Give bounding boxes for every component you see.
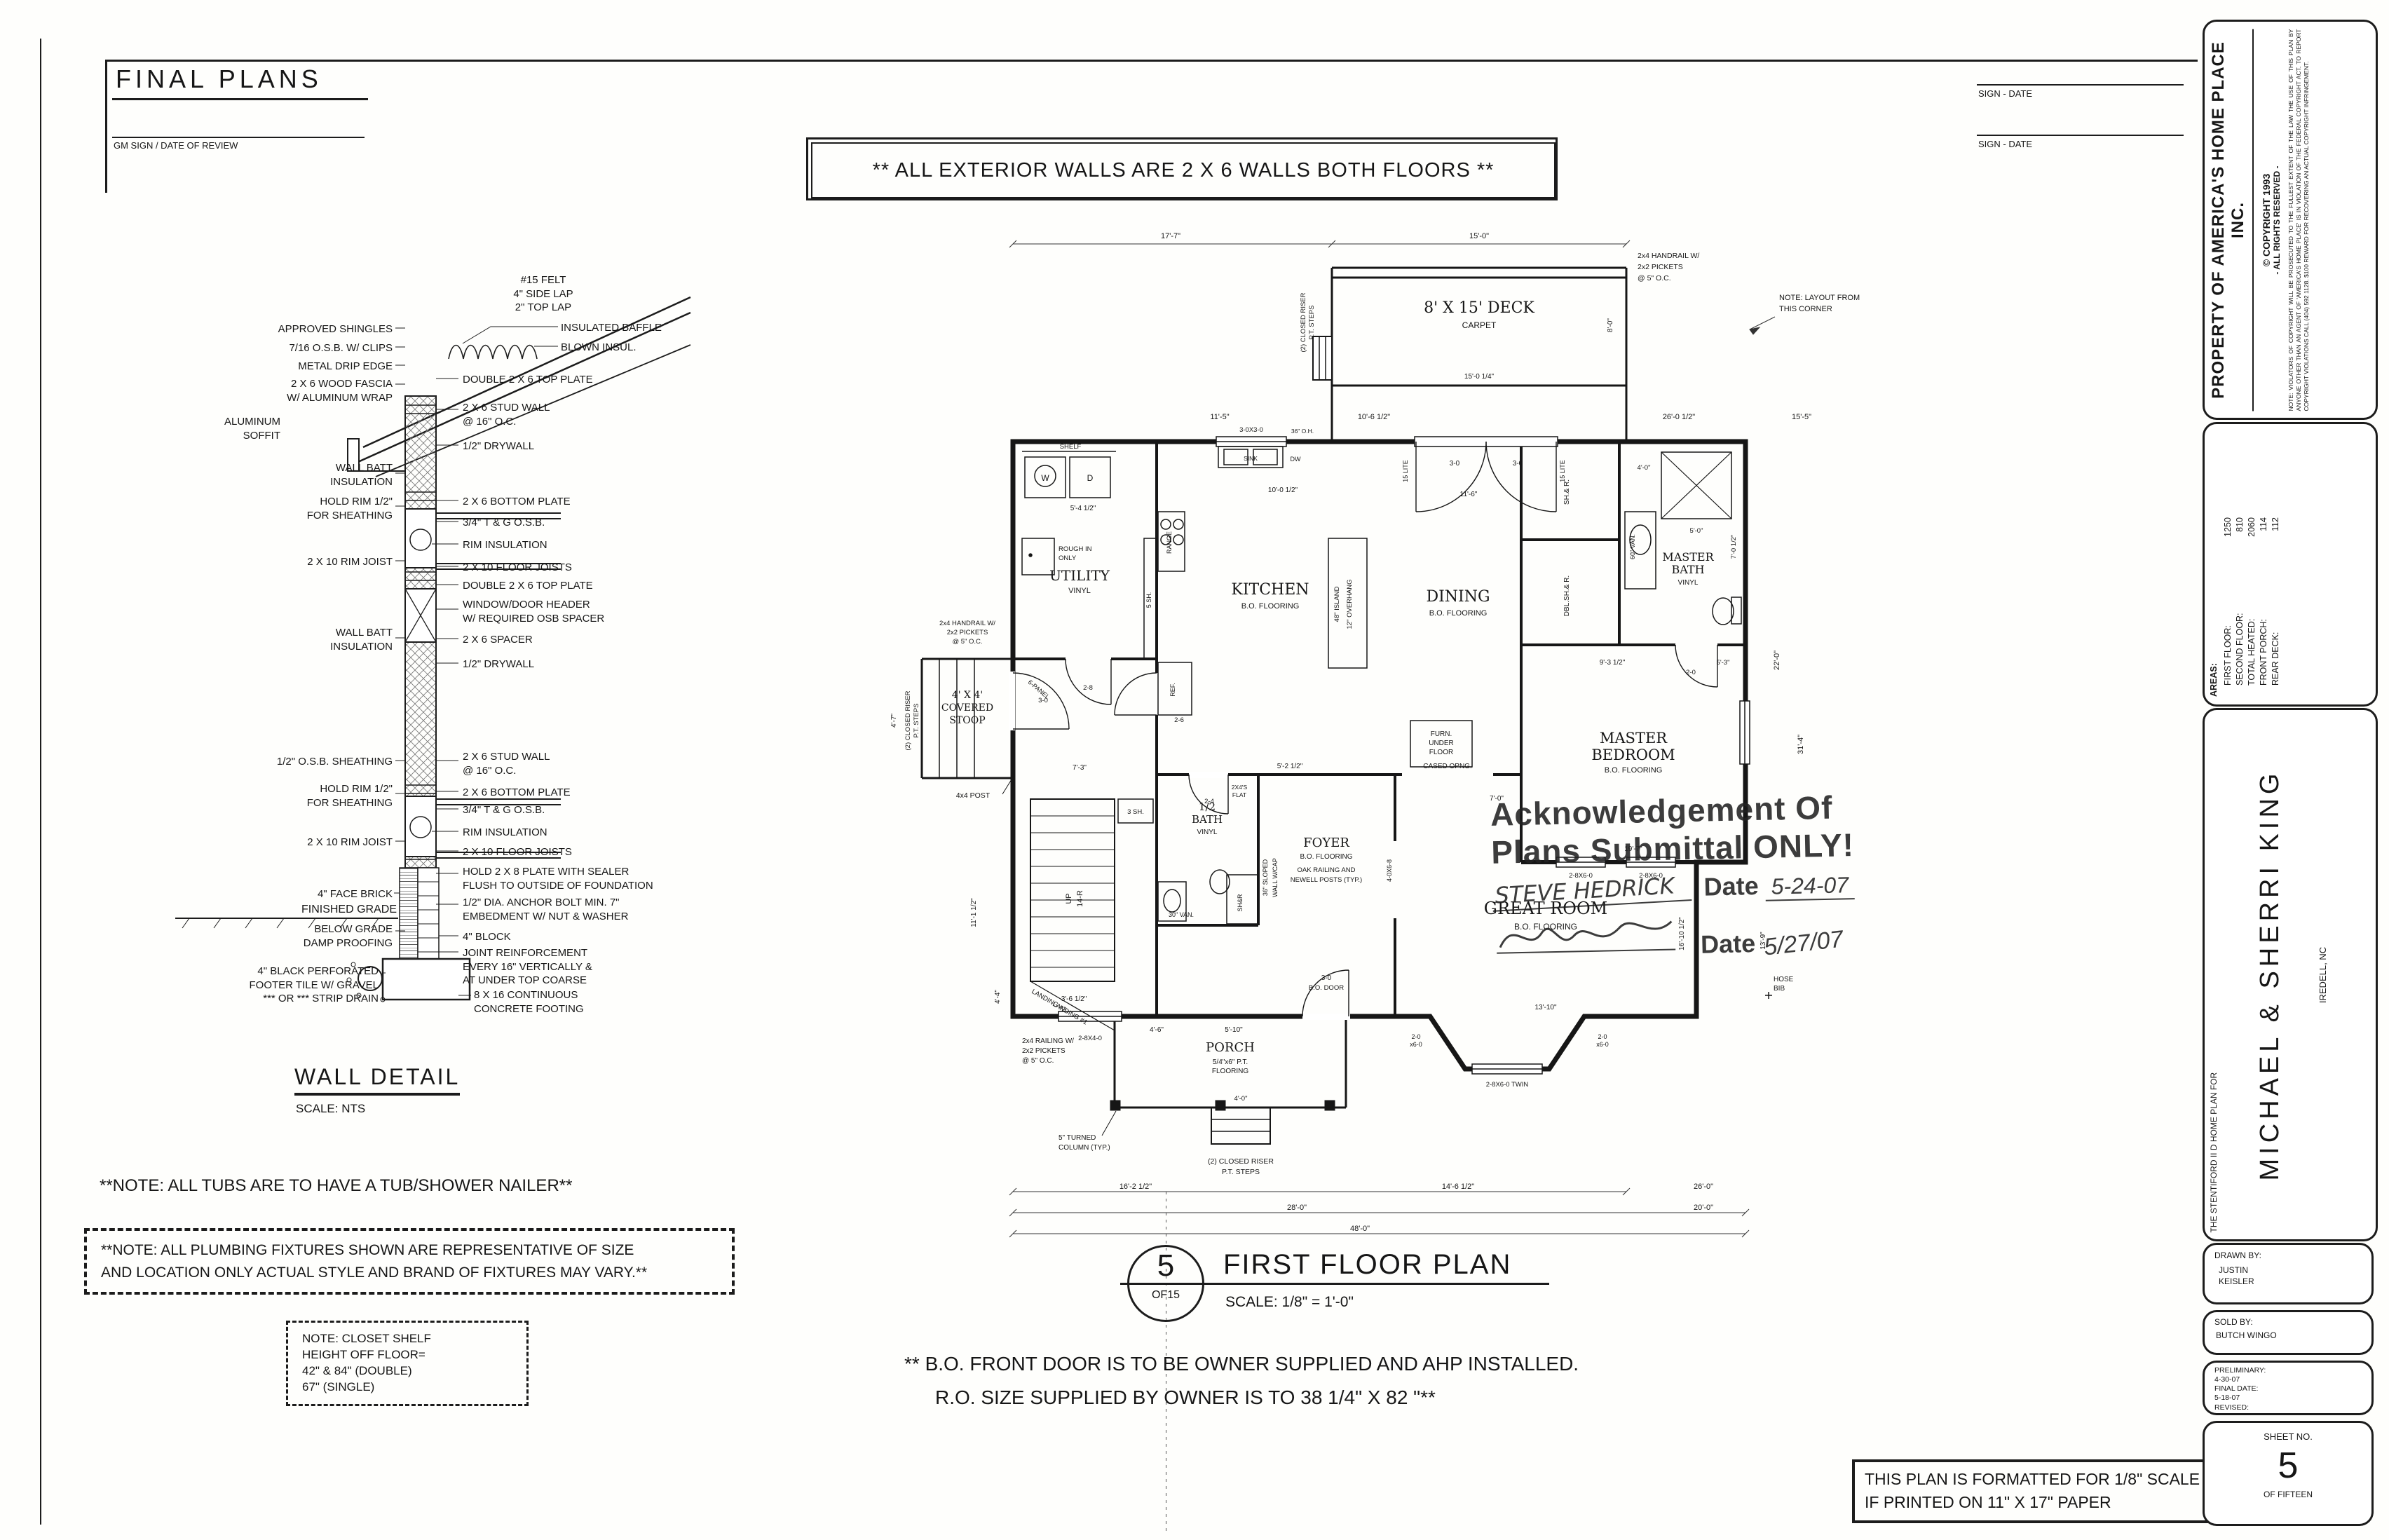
dim-mbath-2: 5'-0" — [1690, 527, 1703, 535]
stoop-name-3: STOOP — [949, 715, 985, 726]
wd-label-osb-clips: 7/16 O.S.B. W/ CLIPS — [289, 341, 393, 355]
porch-steps-note-1: (2) CLOSED RISER — [1208, 1157, 1274, 1166]
floor-plan-drawing: 8' X 15' DECK CARPET KITCHEN B.O. FLOORI… — [799, 210, 1879, 1248]
dim-left-11-1: 11'-1 1/2" — [970, 898, 978, 927]
shr-label: SH.& R. — [1563, 479, 1571, 505]
copyright-line-1: © COPYRIGHT 1993 — [2261, 29, 2272, 411]
wd-label-topplate-2: DOUBLE 2 X 6 TOP PLATE — [463, 579, 593, 593]
wd-label-soffit: ALUMINUM SOFFIT — [224, 415, 280, 442]
area-label: REAR DECK: — [2271, 632, 2280, 686]
half-bath-name-2: BATH — [1192, 813, 1223, 826]
porch-steps-note-2: P.T. STEPS — [1222, 1168, 1260, 1176]
dim-porch-steps: 4'-0" — [1234, 1095, 1248, 1103]
dim-porch-1: 4'-6" — [1150, 1026, 1164, 1034]
dim-bottom-48-0: 48'-0" — [1350, 1225, 1370, 1233]
area-value: 2060 — [2247, 517, 2257, 537]
wd-label-tg-osb-1: 3/4" T & G O.S.B. — [463, 516, 545, 530]
door-20: 2-0 — [1686, 669, 1696, 676]
acknowledgement-stamp: Acknowledgement Of Plans Submittal ONLY!… — [1490, 786, 1956, 964]
kitchen-name: KITCHEN — [1231, 581, 1309, 599]
window-3030: 3-0X3-0 — [1239, 426, 1263, 434]
deck-steps-note-1: (2) CLOSED RISER — [1300, 292, 1307, 352]
area-value: 114 — [2259, 517, 2268, 531]
cased-opening-label: CASED OPNG. — [1423, 763, 1471, 770]
island-overhang-label: 12" OVERHANG — [1346, 580, 1354, 629]
dim-foyer: 5'-2 1/2" — [1277, 763, 1303, 770]
wd-label-fascia: 2 X 6 WOOD FASCIA W/ ALUMINUM WRAP — [287, 377, 393, 404]
dim-10-6: 10'-6 1/2" — [1358, 413, 1390, 421]
wd-label-batt-1: WALL BATT INSULATION — [330, 461, 393, 489]
shelf3-label: 3 SH. — [1127, 808, 1144, 816]
wd-label-face-brick: 4" FACE BRICK — [318, 887, 393, 901]
range-label: RANGE — [1166, 531, 1173, 554]
tub-note: **NOTE: ALL TUBS ARE TO HAVE A TUB/SHOWE… — [100, 1176, 572, 1196]
utility-finish: VINYL — [1068, 587, 1091, 595]
door-24: 2-4 — [1204, 798, 1214, 805]
sloped-wall-1: 36" SLOPED — [1262, 859, 1269, 896]
copyright-line-2: - ALL RIGHTS RESERVED - — [2272, 29, 2282, 411]
stoop-handrail-1: 2x4 HANDRAIL W/ — [939, 620, 995, 627]
door-30-right: 3-0 — [1513, 460, 1523, 468]
wd-label-batt-2: WALL BATT INSULATION — [330, 626, 393, 653]
stoop-name-2: COVERED — [941, 702, 993, 714]
sidebar-dates-box: PRELIMINARY: 4-30-07 FINAL DATE: 5-18-07… — [2203, 1361, 2374, 1415]
area-value: 112 — [2271, 517, 2280, 531]
kitchen-finish: B.O. FLOORING — [1241, 602, 1300, 611]
sheet-no-label: SHEET NO. — [2205, 1431, 2371, 1442]
dim-bottom-28-0: 28'-0" — [1287, 1204, 1307, 1212]
dim-bed-2: 5'-3" — [1717, 659, 1730, 667]
wd-label-drip-edge: METAL DRIP EDGE — [298, 360, 393, 374]
bo-door-note-1: ** B.O. FRONT DOOR IS TO BE OWNER SUPPLI… — [904, 1353, 1579, 1375]
handrail-note-1: 2x4 HANDRAIL W/ — [1638, 252, 1699, 260]
format-note-text: THIS PLAN IS FORMATTED FOR 1/8" SCALE IF… — [1865, 1468, 2215, 1515]
wd-label-footer-tile: 4" BLACK PERFORATED FOOTER TILE W/ GRAVE… — [250, 965, 379, 1006]
area-label: FRONT PORCH: — [2259, 619, 2268, 686]
stair-up-label: UP — [1065, 893, 1073, 904]
wd-label-rimjoist-1: 2 X 10 RIM JOIST — [307, 555, 393, 569]
closet-note-box: NOTE: CLOSET SHELF HEIGHT OFF FLOOR= 42"… — [286, 1321, 529, 1406]
dbl-shr-label: DBL.SH.& R. — [1563, 575, 1571, 616]
wd-label-holdrim-2: HOLD RIM 1/2" FOR SHEATHING — [307, 782, 393, 810]
wd-label-baffle: INSULATED BAFFLE — [561, 321, 662, 335]
deck-finish: CARPET — [1462, 320, 1497, 330]
stoop-steps-note-2: P.T. STEPS — [913, 704, 920, 738]
mbath-name-2: BATH — [1671, 563, 1704, 576]
furnace-label-3: FLOOR — [1429, 749, 1453, 756]
dim-kitchen: 10'-0 1/2" — [1268, 486, 1298, 494]
lite-label-right: 15 LITE — [1559, 460, 1566, 482]
porch-name: PORCH — [1206, 1040, 1255, 1055]
plumbing-note-text: **NOTE: ALL PLUMBING FIXTURES SHOWN ARE … — [101, 1239, 718, 1283]
column-note-2: COLUMN (TYP.) — [1059, 1144, 1110, 1152]
sign-date-line-2 — [1977, 135, 2184, 136]
foyer-rail-2: NEWELL POSTS (TYP.) — [1291, 876, 1362, 884]
plan-dimensions: 17'-7" 15'-0" 15'-0 1/4" 8'-0" 11'-5" 10… — [890, 232, 1811, 1233]
post-note: 4x4 POST — [956, 791, 991, 800]
wd-label-stud-1: 2 X 6 STUD WALL @ 16" O.C. — [463, 401, 550, 428]
area-value: 1250 — [2223, 517, 2233, 537]
sign-date-line-1 — [1977, 84, 2184, 86]
preliminary-label: PRELIMINARY: — [2214, 1366, 2362, 1375]
sheet-corner-border — [105, 60, 107, 193]
cased-4068: 4-0X6-8 — [1386, 859, 1393, 882]
rough-in-label-2: ONLY — [1059, 554, 1077, 562]
mbed-name-1: MASTER — [1600, 730, 1668, 747]
dim-15-5: 15'-5" — [1792, 413, 1811, 421]
dim-17-7: 17'-7" — [1161, 232, 1180, 240]
deck-steps-note-2: P.T. STEPS — [1308, 306, 1316, 340]
area-label: SECOND FLOOR: — [2235, 613, 2245, 686]
vanity60-label: 60" VAN. — [1629, 534, 1636, 559]
furnace-label-2: UNDER — [1429, 740, 1454, 747]
dim-26-0-half: 26'-0 1/2" — [1663, 413, 1695, 421]
wd-label-stud-2: 2 X 6 STUD WALL @ 16" O.C. — [463, 750, 550, 777]
plan-for-text: THE STENTIFORD II D HOME PLAN FOR — [2209, 717, 2219, 1232]
sidebar-client-box: THE STENTIFORD II D HOME PLAN FOR MICHAE… — [2203, 708, 2378, 1241]
dim-right-22: 22'-0" — [1773, 650, 1781, 670]
wd-label-grade: FINISHED GRADE — [301, 903, 397, 919]
gm-sign-label: GM SIGN / DATE OF REVIEW — [114, 140, 238, 151]
wd-label-rim-insul-2: RIM INSULATION — [463, 826, 547, 840]
sheet-badge-of: OF15 — [1129, 1289, 1202, 1302]
stoop-handrail-3: @ 5" O.C. — [952, 638, 982, 646]
rough-in-label-1: ROUGH IN — [1059, 545, 1092, 553]
plan-title: FIRST FLOOR PLAN — [1223, 1249, 1511, 1281]
layout-corner-note-2: THIS CORNER — [1779, 305, 1832, 313]
property-of-text: PROPERTY OF AMERICA'S HOME PLACE INC. — [2209, 29, 2254, 411]
plan-annotations: 2x4 HANDRAIL W/ 2x2 PICKETS @ 5" O.C. (2… — [904, 252, 1860, 1176]
plumbing-note-box: **NOTE: ALL PLUMBING FIXTURES SHOWN ARE … — [84, 1228, 735, 1295]
layout-corner-note-1: NOTE: LAYOUT FROM — [1779, 294, 1860, 302]
exterior-walls-banner: ** ALL EXTERIOR WALLS ARE 2 X 6 WALLS BO… — [806, 137, 1558, 200]
sign-date-label-1: SIGN - DATE — [1978, 88, 2032, 99]
door-28: 2-8 — [1083, 684, 1093, 692]
stoop-handrail-2: 2x2 PICKETS — [947, 629, 988, 636]
final-date-label: FINAL DATE: — [2214, 1384, 2362, 1394]
plan-sheet: FINAL PLANS GM SIGN / DATE OF REVIEW ** … — [0, 0, 2389, 1540]
wd-label-bottomplate-2: 2 X 6 BOTTOM PLATE — [463, 786, 571, 800]
window-2060-right-a: 2-0 — [1598, 1033, 1607, 1040]
window-2060-left-b: x6-0 — [1410, 1041, 1422, 1048]
client-location: IREDELL, NC — [2317, 717, 2328, 1232]
dim-mbath-3: 7'-0 1/2" — [1730, 535, 1738, 559]
shelf-label: SHELF — [1060, 443, 1082, 451]
stamp-date-1: 5-24-07 — [1765, 872, 1854, 901]
sold-by-label: SOLD BY: — [2214, 1317, 2362, 1327]
door-30-left: 3-0 — [1450, 460, 1460, 468]
dim-porch-2: 5'-10" — [1225, 1026, 1243, 1034]
porch-rail-note-2: 2x2 PICKETS — [1022, 1047, 1066, 1055]
title-block-sidebar: PROPERTY OF AMERICA'S HOME PLACE INC. © … — [2200, 14, 2379, 1532]
foyer-rail-1: OAK RAILING AND — [1298, 866, 1356, 874]
drawn-by-label: DRAWN BY: — [2214, 1251, 2362, 1260]
wd-label-sealer-plate: HOLD 2 X 8 PLATE WITH SEALER FLUSH TO OU… — [463, 865, 653, 892]
dim-utility: 5'-4 1/2" — [1070, 505, 1096, 512]
wd-label-osb-sheathing: 1/2" O.S.B. SHEATHING — [277, 755, 393, 769]
wd-label-dampproof: BELOW GRADE DAMP PROOFING — [304, 922, 393, 950]
dim-deck-width: 15'-0 1/4" — [1464, 373, 1495, 381]
porch-finish-2: FLOORING — [1212, 1068, 1248, 1075]
sidebar-sheet-box: SHEET NO. 5 OF FIFTEEN — [2203, 1421, 2374, 1526]
dim-left-4-4: 4'-4" — [994, 990, 1002, 1004]
wd-label-anchor-bolt: 1/2" DIA. ANCHOR BOLT MIN. 7" EMBEDMENT … — [463, 896, 628, 923]
deck-name: 8' X 15' DECK — [1424, 299, 1534, 317]
stair-riser-label: 14-R — [1076, 890, 1084, 907]
utility-name: UTILITY — [1049, 567, 1110, 584]
furnace-label-1: FURN. — [1431, 730, 1452, 738]
mbath-finish: VINYL — [1678, 579, 1699, 587]
sheet-left-border — [40, 39, 41, 1525]
foyer-name: FOYER — [1303, 836, 1349, 850]
final-date: 5-18-07 — [2214, 1394, 2362, 1403]
dim-dining: 11'-6" — [1460, 491, 1478, 498]
revised-label: REVISED: — [2214, 1403, 2362, 1412]
hose-bib-1: HOSE — [1774, 976, 1794, 983]
preliminary-date: 4-30-07 — [2214, 1375, 2362, 1384]
window-2060-left-a: 2-0 — [1411, 1033, 1420, 1040]
wd-label-shingles: APPROVED SHINGLES — [278, 322, 393, 336]
title-underline — [112, 98, 368, 100]
washer-label: W — [1041, 473, 1049, 483]
dim-deck-depth: 8'-0" — [1607, 318, 1614, 332]
dw-label: DW — [1291, 456, 1301, 463]
sheet-no-value: 5 — [2205, 1445, 2371, 1487]
area-label: TOTAL HEATED: — [2247, 619, 2257, 686]
wd-label-joint-reinf: JOINT REINFORCEMENT EVERY 16" VERTICALLY… — [463, 946, 592, 988]
sheet-badge-number: 5 — [1129, 1248, 1202, 1283]
sheet-top-border — [105, 60, 2198, 62]
foyer-finish: B.O. FLOORING — [1300, 853, 1352, 861]
drawn-by-value: JUSTIN KEISLER — [2219, 1265, 2362, 1287]
stamp-date-label-2: Date — [1701, 929, 1756, 960]
sidebar-sold-box: SOLD BY: BUTCH WINGO — [2203, 1310, 2374, 1355]
wd-label-floor-joists-1: 2 X 10 FLOOR JOISTS — [463, 561, 572, 575]
dim-bottom-26-0: 26'-0" — [1694, 1183, 1713, 1191]
dim-11-5: 11'-5" — [1210, 413, 1229, 421]
sold-by-value: BUTCH WINGO — [2216, 1330, 2362, 1340]
island-label: 48" ISLAND — [1333, 586, 1341, 622]
dim-mbath-1: 4'-0" — [1638, 464, 1651, 472]
wd-label-tg-osb-2: 3/4" T & G O.S.B. — [463, 803, 545, 817]
sidebar-areas-box: AREAS: FIRST FLOOR: 1250 SECOND FLOOR: 8… — [2203, 422, 2378, 707]
dim-right-31: 31'-4" — [1797, 735, 1805, 754]
wd-label-drywall-1: 1/2" DRYWALL — [463, 439, 534, 454]
wall-detail-scale: SCALE: NTS — [296, 1102, 365, 1116]
stamp-date-label-1: Date — [1703, 871, 1759, 902]
sign-date-label-2: SIGN - DATE — [1978, 139, 2032, 149]
window-2060-right-b: x6-0 — [1596, 1041, 1609, 1048]
ref-label: REF. — [1169, 683, 1176, 697]
sheet-badge: 5 OF15 — [1127, 1245, 1204, 1322]
mbed-finish: B.O. FLOORING — [1605, 766, 1663, 775]
dim-15-0: 15'-0" — [1469, 232, 1489, 240]
window-2840: 2-8X4-0 — [1078, 1035, 1102, 1042]
wd-label-topplate-1: DOUBLE 2 X 6 TOP PLATE — [463, 373, 593, 387]
sidebar-property-box: PROPERTY OF AMERICA'S HOME PLACE INC. © … — [2203, 20, 2378, 420]
half-bath-finish: VINYL — [1197, 829, 1218, 836]
shelf5-label: 5 SH. — [1145, 592, 1152, 608]
lite-label-left: 15 LITE — [1402, 460, 1409, 482]
wd-label-rim-insul-1: RIM INSULATION — [463, 538, 547, 552]
wd-label-header: WINDOW/DOOR HEADER W/ REQUIRED OSB SPACE… — [463, 598, 604, 625]
page-title: FINAL PLANS — [116, 64, 322, 94]
dim-bottom-20-0: 20'-0" — [1694, 1204, 1713, 1212]
door-26: 2-6 — [1174, 716, 1184, 724]
hose-bib-2: BIB — [1774, 985, 1785, 993]
stamp-signature-name: STEVE HEDRICK — [1492, 871, 1692, 912]
dim-hall: 7'-3" — [1073, 764, 1087, 772]
dim-stair: 3'-6 1/2" — [1061, 995, 1087, 1003]
wd-label-rimjoist-2: 2 X 10 RIM JOIST — [307, 836, 393, 850]
front-door-bo: B.O. DOOR — [1309, 984, 1344, 992]
porch-rail-note-1: 2x4 RAILING W/ — [1022, 1037, 1074, 1045]
handrail-note-2: 2x2 PICKETS — [1638, 263, 1683, 271]
porch-finish-1: 5/4"x6" P.T. — [1213, 1058, 1248, 1066]
wd-label-holdrim-1: HOLD RIM 1/2" FOR SHEATHING — [307, 495, 393, 522]
flat-label-1: 2X4'S — [1232, 784, 1248, 791]
floor-plan-panel: 8' X 15' DECK CARPET KITCHEN B.O. FLOORI… — [799, 210, 1879, 1248]
bo-door-note-2: R.O. SIZE SUPPLIED BY OWNER IS TO 38 1/4… — [935, 1386, 1436, 1409]
front-door-30: 3-0 — [1321, 974, 1332, 982]
banner-text: ** ALL EXTERIOR WALLS ARE 2 X 6 WALLS BO… — [873, 159, 1495, 182]
vanity30-label: 30" VAN. — [1169, 911, 1194, 918]
dim-bottom-16-2: 16'-2 1/2" — [1119, 1183, 1152, 1191]
wall-detail-title: WALL DETAIL — [294, 1064, 460, 1096]
areas-title: AREAS: — [2209, 432, 2219, 697]
sink-label: SINK — [1244, 455, 1258, 462]
sidebar-drawn-box: DRAWN BY: JUSTIN KEISLER — [2203, 1243, 2374, 1304]
dining-finish: B.O. FLOORING — [1429, 609, 1488, 618]
flat-label-2: FLAT — [1232, 791, 1246, 798]
sloped-wall-2: WALL W/CAP — [1272, 858, 1279, 897]
sheet-of-label: OF FIFTEEN — [2205, 1490, 2371, 1499]
wd-felt-note: #15 FELT 4" SIDE LAP 2" TOP LAP — [491, 273, 596, 315]
oh36-label: 36" O.H. — [1291, 428, 1314, 435]
handrail-note-3: @ 5" O.C. — [1638, 274, 1671, 282]
stoop-name-1: 4' X 4' — [952, 690, 983, 701]
wd-label-floor-joists-2: 2 X 10 FLOOR JOISTS — [463, 845, 572, 859]
dim-left-4-7: 4'-7" — [890, 714, 898, 728]
copyright-note: NOTE: VIOLATORS OF COPYRIGHT WILL BE PRO… — [2287, 29, 2310, 411]
wd-label-spacer: 2 X 6 SPACER — [463, 633, 533, 647]
mbed-name-2: BEDROOM — [1591, 747, 1675, 763]
wall-detail-panel: #15 FELT 4" SIDE LAP 2" TOP LAP APPROVED… — [70, 266, 771, 1037]
stamp-date-2: 5/27/07 — [1762, 926, 1844, 962]
dim-bed-1: 9'-3 1/2" — [1600, 659, 1626, 667]
plan-scale: SCALE: 1/8" = 1'-0" — [1225, 1294, 1354, 1311]
area-label: FIRST FLOOR: — [2223, 625, 2233, 686]
dim-great-2: 13'-10" — [1534, 1004, 1556, 1011]
stoop-steps-note-1: (2) CLOSED RISER — [904, 690, 912, 750]
wd-label-block: 4" BLOCK — [463, 930, 511, 944]
porch-rail-note-3: @ 5" O.C. — [1022, 1057, 1054, 1065]
closet-note-text: NOTE: CLOSET SHELF HEIGHT OFF FLOOR= 42"… — [302, 1331, 512, 1396]
wd-label-footing: 8 X 16 CONTINUOUS CONCRETE FOOTING — [474, 988, 584, 1016]
plan-walls — [922, 268, 1745, 1144]
plan-fixtures — [1002, 447, 1772, 1136]
dim-bottom-14-6: 14'-6 1/2" — [1442, 1183, 1474, 1191]
shr-closet-label: SH&R — [1237, 894, 1244, 912]
dryer-label: D — [1087, 473, 1094, 483]
area-value: 810 — [2235, 517, 2245, 532]
wd-label-drywall-2: 1/2" DRYWALL — [463, 657, 534, 672]
wd-label-bottomplate-1: 2 X 6 BOTTOM PLATE — [463, 495, 571, 509]
mbath-name-1: MASTER — [1662, 550, 1714, 564]
wd-label-blown: BLOWN INSUL. — [561, 341, 637, 355]
column-note-1: 5" TURNED — [1059, 1134, 1096, 1142]
dining-name: DINING — [1426, 588, 1490, 606]
window-twin: 2-8X6-0 TWIN — [1486, 1081, 1529, 1089]
format-note-box: THIS PLAN IS FORMATTED FOR 1/8" SCALE IF… — [1852, 1459, 2228, 1523]
wall-detail-drawing — [70, 266, 771, 1037]
gm-sign-line — [112, 137, 365, 138]
signature-scribble — [1492, 908, 1682, 958]
client-name: MICHAEL & SHERRI KING — [2255, 717, 2285, 1232]
